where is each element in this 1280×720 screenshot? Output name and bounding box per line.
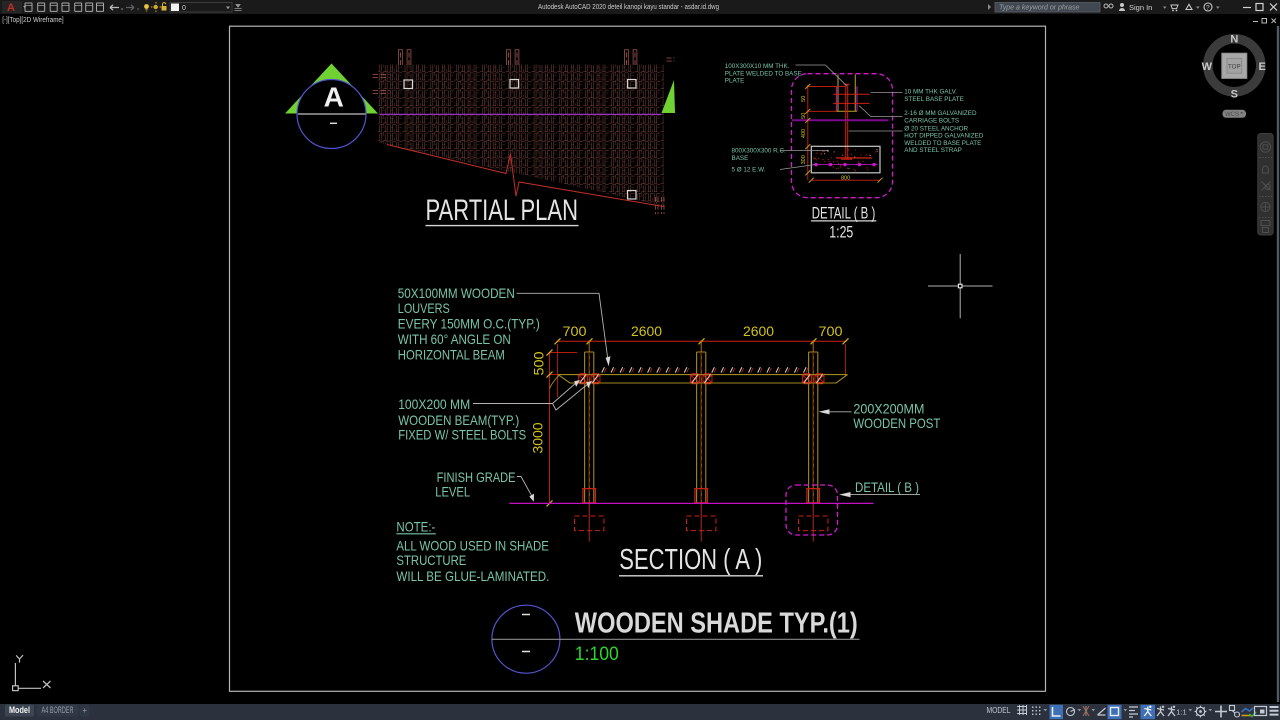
svg-text:WOODEN SHADE TYP.(1): WOODEN SHADE TYP.(1) xyxy=(575,607,858,639)
svg-text:EVERY 150MM O.C.(TYP.): EVERY 150MM O.C.(TYP.) xyxy=(398,317,540,332)
svg-text:0: 0 xyxy=(182,5,186,12)
svg-text:BASE: BASE xyxy=(732,155,749,162)
svg-text:WOODEN BEAM(TYP.): WOODEN BEAM(TYP.) xyxy=(398,413,519,428)
svg-text:200X200MM: 200X200MM xyxy=(853,402,924,417)
svg-text:A: A xyxy=(7,2,15,14)
svg-text:LOUVERS: LOUVERS xyxy=(398,301,450,316)
svg-text:N: N xyxy=(1230,34,1238,46)
svg-text:WELDED TO BASE PLATE: WELDED TO BASE PLATE xyxy=(904,140,981,147)
svg-text:+: + xyxy=(82,706,87,715)
svg-text:WILL BE GLUE-LAMINATED.: WILL BE GLUE-LAMINATED. xyxy=(396,569,549,584)
svg-text:FIXED W/ STEEL BOLTS: FIXED W/ STEEL BOLTS xyxy=(398,428,526,443)
svg-text:1:100: 1:100 xyxy=(575,644,619,665)
svg-text:300: 300 xyxy=(801,155,807,164)
svg-text:50X100MM WOODEN: 50X100MM WOODEN xyxy=(398,286,515,301)
svg-text:MODEL: MODEL xyxy=(987,706,1011,715)
svg-text:800: 800 xyxy=(841,175,850,181)
svg-text:3000: 3000 xyxy=(530,423,545,454)
svg-text:STRUCTURE: STRUCTURE xyxy=(396,553,466,568)
svg-text:100X200 MM: 100X200 MM xyxy=(398,397,470,412)
svg-text:AND STEEL STRAP: AND STEEL STRAP xyxy=(904,147,962,154)
svg-text:Ø 20 STEEL ANCHOR: Ø 20 STEEL ANCHOR xyxy=(904,125,968,132)
svg-text:TOP: TOP xyxy=(1228,64,1241,71)
svg-text:NOTE:-: NOTE:- xyxy=(396,519,435,534)
svg-text:Autodesk AutoCAD 2020 detei: Autodesk AutoCAD 2020 deteil kanopi kayu… xyxy=(538,2,719,11)
svg-text:PLATE: PLATE xyxy=(725,78,744,85)
svg-text:400: 400 xyxy=(801,129,807,138)
svg-text:2-16 Ø MM GALVANIZED: 2-16 Ø MM GALVANIZED xyxy=(904,110,977,117)
svg-text:DETAIL ( B ): DETAIL ( B ) xyxy=(855,480,919,495)
svg-text:10 MM THK GALV.: 10 MM THK GALV. xyxy=(904,89,957,96)
svg-text:?: ? xyxy=(1206,5,1210,12)
svg-text:2600: 2600 xyxy=(631,324,662,339)
svg-text:W: W xyxy=(1202,61,1213,73)
svg-text:800X300X300 R.C.: 800X300X300 R.C. xyxy=(732,148,787,155)
svg-text:FINISH GRADE: FINISH GRADE xyxy=(437,470,516,485)
svg-text:Sign In: Sign In xyxy=(1129,3,1152,12)
svg-text:S: S xyxy=(1231,89,1238,101)
svg-text:PLATE WELDED TO BASE: PLATE WELDED TO BASE xyxy=(725,70,802,77)
svg-text:700: 700 xyxy=(819,324,843,339)
svg-text:[-][Top][2D Wireframe]: [-][Top][2D Wireframe] xyxy=(2,17,64,24)
svg-text:LEVEL: LEVEL xyxy=(435,484,470,499)
svg-text:WITH 60° ANGLE ON: WITH 60° ANGLE ON xyxy=(398,332,511,347)
svg-text:100X300X10 MM THK.: 100X300X10 MM THK. xyxy=(725,63,790,70)
svg-text:DETAIL ( B ): DETAIL ( B ) xyxy=(812,203,876,222)
svg-text:Model: Model xyxy=(9,705,30,715)
svg-text:1:25: 1:25 xyxy=(829,223,853,242)
svg-text:HOT DIPPED GALVANIZED: HOT DIPPED GALVANIZED xyxy=(904,133,984,140)
svg-text:A4 BORDER: A4 BORDER xyxy=(42,705,74,715)
svg-text:CARRIAGE BOLTS: CARRIAGE BOLTS xyxy=(904,117,959,124)
svg-text:ALL WOOD USED IN SHADE: ALL WOOD USED IN SHADE xyxy=(396,538,549,553)
svg-text:50: 50 xyxy=(801,96,807,102)
svg-text:50: 50 xyxy=(801,113,807,119)
svg-text:A: A xyxy=(324,82,344,113)
svg-text:STEEL BASE PLATE: STEEL BASE PLATE xyxy=(904,96,964,103)
svg-text:E: E xyxy=(1259,61,1266,73)
svg-text:WCS: WCS xyxy=(1225,112,1239,118)
svg-text:PARTIAL PLAN: PARTIAL PLAN xyxy=(426,194,579,227)
svg-text:Type a keyword or phrase: Type a keyword or phrase xyxy=(999,5,1080,12)
svg-text:700: 700 xyxy=(563,324,587,339)
svg-text:WOODEN POST: WOODEN POST xyxy=(853,416,940,431)
svg-text:2600: 2600 xyxy=(743,324,774,339)
svg-text:500: 500 xyxy=(532,352,547,376)
svg-text:HORIZONTAL BEAM: HORIZONTAL BEAM xyxy=(398,347,505,362)
svg-text:1:1: 1:1 xyxy=(1176,708,1186,717)
svg-text:5 Ø 12 E.W.: 5 Ø 12 E.W. xyxy=(732,167,766,174)
svg-text:SECTION ( A ): SECTION ( A ) xyxy=(619,544,762,576)
